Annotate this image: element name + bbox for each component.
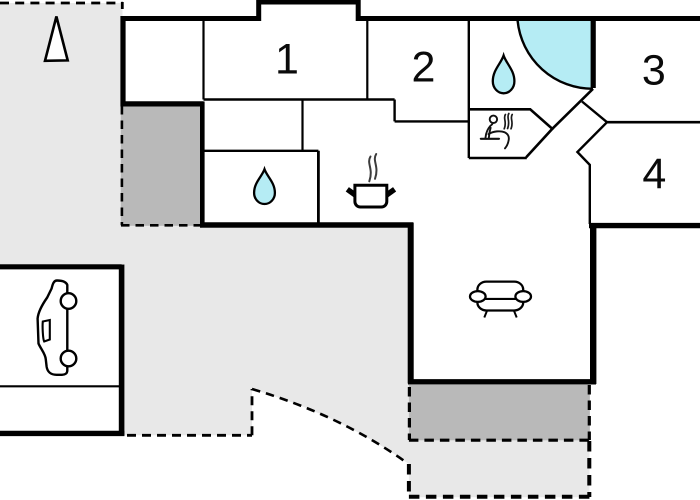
svg-text:2: 2 [412, 44, 436, 92]
svg-text:1: 1 [275, 36, 299, 84]
svg-text:4: 4 [642, 150, 666, 198]
svg-text:3: 3 [642, 47, 666, 95]
